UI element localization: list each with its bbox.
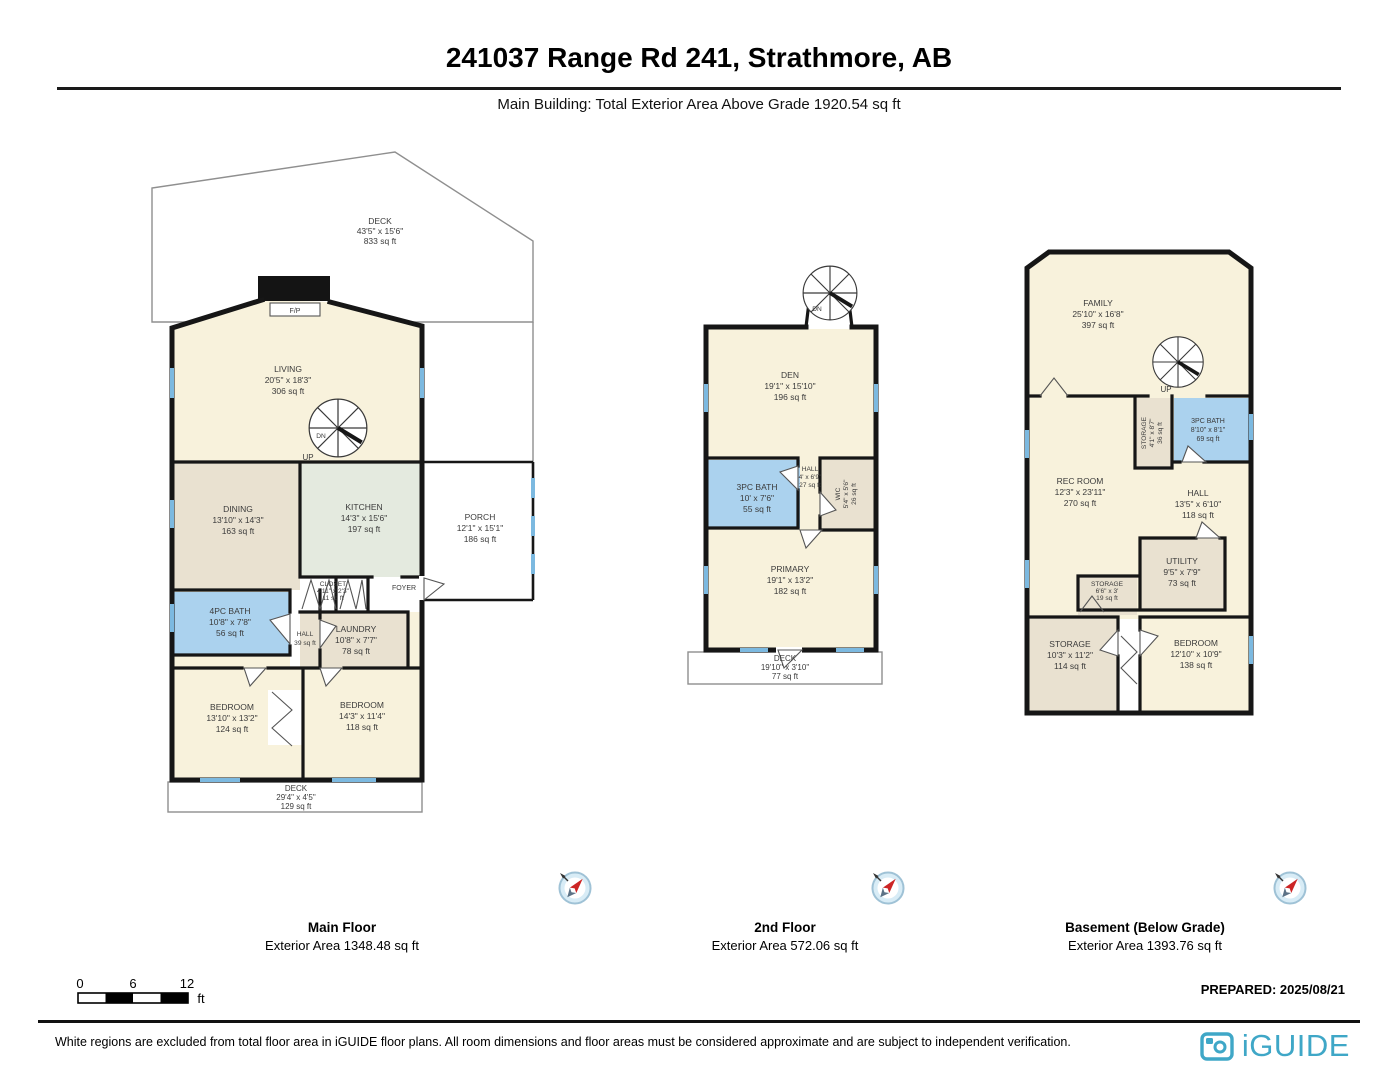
room-label-storage-lower: STORAGE <box>1049 639 1091 649</box>
svg-text:55 sq ft: 55 sq ft <box>743 504 772 514</box>
svg-text:8'10" x 8'1": 8'10" x 8'1" <box>1191 427 1226 434</box>
svg-text:39 sq ft: 39 sq ft <box>294 640 316 647</box>
room-label-rec-room: REC ROOM <box>1057 476 1104 486</box>
room-label-family: FAMILY <box>1083 298 1113 308</box>
footer-divider <box>38 1020 1360 1023</box>
svg-text:14'3" x 15'6": 14'3" x 15'6" <box>341 513 388 523</box>
compass-icon <box>1275 873 1306 904</box>
disclaimer-text: White regions are excluded from total fl… <box>55 1035 1071 1049</box>
svg-text:186 sq ft: 186 sq ft <box>464 534 497 544</box>
spiral-staircase-icon <box>803 266 857 320</box>
scale-bar: 0 6 12 ft <box>76 976 205 1006</box>
svg-text:13'10" x 13'2": 13'10" x 13'2" <box>206 713 257 723</box>
iguide-logo: iGUIDE <box>1199 1028 1350 1064</box>
stair-dn-label: DN <box>316 433 326 440</box>
room-label-closet: CLOSET <box>320 581 346 588</box>
svg-text:13'5" x 6'10": 13'5" x 6'10" <box>1175 499 1222 509</box>
svg-text:20'5" x 18'3": 20'5" x 18'3" <box>265 375 312 385</box>
svg-text:129 sq ft: 129 sq ft <box>281 802 312 811</box>
stair-up-label: UP <box>1160 385 1171 394</box>
svg-text:29'4" x 4'5": 29'4" x 4'5" <box>276 793 316 802</box>
fireplace-label: F/P <box>290 308 301 315</box>
svg-text:196 sq ft: 196 sq ft <box>774 392 807 402</box>
room-label-bedroom-left: BEDROOM <box>210 702 254 712</box>
room-label-primary: PRIMARY <box>771 564 810 574</box>
caption-second-floor: 2nd Floor Exterior Area 572.06 sq ft <box>625 920 945 953</box>
svg-text:STORAGE: STORAGE <box>1141 416 1148 449</box>
room-label-hall-basement: HALL <box>1187 488 1209 498</box>
basement-floor-plan: FAMILY 25'10" x 16'8" 397 sq ft STORAGE … <box>1027 252 1251 713</box>
svg-text:114 sq ft: 114 sq ft <box>1054 661 1087 671</box>
room-label-living: LIVING <box>274 364 302 374</box>
svg-text:10'8" x 7'7": 10'8" x 7'7" <box>335 635 377 645</box>
svg-text:4'1" x 8'7": 4'1" x 8'7" <box>1149 418 1156 447</box>
svg-text:4'11" x 2'3": 4'11" x 2'3" <box>317 588 350 595</box>
scale-unit: ft <box>197 991 205 1006</box>
svg-text:43'5" x 15'6": 43'5" x 15'6" <box>357 226 404 236</box>
main-deck-upper-outline <box>152 152 533 322</box>
stair-up-label: UP <box>302 453 313 462</box>
spiral-staircase-icon <box>309 399 367 457</box>
svg-text:182 sq ft: 182 sq ft <box>774 586 807 596</box>
svg-text:306 sq ft: 306 sq ft <box>272 386 305 396</box>
room-label-porch: PORCH <box>465 512 496 522</box>
room-label-laundry: LAUNDRY <box>336 624 377 634</box>
svg-text:77 sq ft: 77 sq ft <box>772 672 799 681</box>
svg-text:73 sq ft: 73 sq ft <box>1168 578 1197 588</box>
scale-tick-6: 6 <box>129 976 136 991</box>
room-label-foyer: FOYER <box>392 585 416 592</box>
scale-tick-0: 0 <box>76 976 83 991</box>
svg-text:19 sq ft: 19 sq ft <box>1096 595 1118 602</box>
svg-text:11 sq ft: 11 sq ft <box>322 595 343 602</box>
compass-icon <box>873 873 904 904</box>
room-label-3pc-bath-basement: 3PC BATH <box>1191 418 1225 425</box>
svg-text:WIC: WIC <box>835 487 842 500</box>
svg-text:118 sq ft: 118 sq ft <box>346 722 379 732</box>
room-label-storage-small: STORAGE <box>1091 581 1124 588</box>
svg-text:12'1" x 15'1": 12'1" x 15'1" <box>457 523 504 533</box>
svg-text:12'10" x 10'9": 12'10" x 10'9" <box>1170 649 1221 659</box>
iguide-camera-icon <box>1199 1030 1235 1062</box>
svg-text:69 sq ft: 69 sq ft <box>1197 436 1220 443</box>
svg-text:197 sq ft: 197 sq ft <box>348 524 381 534</box>
room-label-3pc-bath-2nd: 3PC BATH <box>737 482 778 492</box>
svg-text:6'6" x 3': 6'6" x 3' <box>1096 588 1119 595</box>
second-floor-plan: DEN 19'1" x 15'10" 196 sq ft 3PC BATH 10… <box>688 266 882 684</box>
room-label-4pc-bath: 4PC BATH <box>210 606 251 616</box>
main-floor-plan: DECK 43'5" x 15'6" 833 sq ft LIVING 20'5… <box>152 152 533 812</box>
svg-text:78 sq ft: 78 sq ft <box>342 646 371 656</box>
svg-text:26 sq ft: 26 sq ft <box>851 483 858 505</box>
svg-text:56 sq ft: 56 sq ft <box>216 628 245 638</box>
caption-main-floor: Main Floor Exterior Area 1348.48 sq ft <box>182 920 502 953</box>
room-label-deck-2nd: DECK <box>774 654 797 663</box>
svg-text:10'8" x 7'8": 10'8" x 7'8" <box>209 617 251 627</box>
floor-plans-canvas: DECK 43'5" x 15'6" 833 sq ft LIVING 20'5… <box>0 0 1398 1080</box>
room-label-hall-main: HALL <box>297 631 314 638</box>
caption-basement: Basement (Below Grade) Exterior Area 139… <box>985 920 1305 953</box>
room-label-kitchen: KITCHEN <box>345 502 382 512</box>
room-label-dining: DINING <box>223 504 253 514</box>
floorplan-page: 241037 Range Rd 241, Strathmore, AB Main… <box>0 0 1398 1080</box>
stair-dn-label: DN <box>812 306 822 313</box>
iguide-logo-text: iGUIDE <box>1242 1028 1350 1064</box>
svg-text:10'3" x 11'2": 10'3" x 11'2" <box>1047 650 1093 660</box>
svg-text:13'10" x 14'3": 13'10" x 14'3" <box>212 515 263 525</box>
scale-tick-12: 12 <box>180 976 194 991</box>
svg-text:10' x 7'6": 10' x 7'6" <box>740 493 774 503</box>
svg-text:36 sq ft: 36 sq ft <box>1157 422 1164 444</box>
room-label-bedroom-right: BEDROOM <box>340 700 384 710</box>
svg-text:270 sq ft: 270 sq ft <box>1064 498 1097 508</box>
room-label-utility: UTILITY <box>1166 556 1198 566</box>
svg-text:4' x 6'9": 4' x 6'9" <box>799 474 822 481</box>
room-label-den: DEN <box>781 370 799 380</box>
svg-text:9'5" x 7'9": 9'5" x 7'9" <box>1163 567 1200 577</box>
room-label-deck-lower: DECK <box>285 784 308 793</box>
svg-text:124 sq ft: 124 sq ft <box>216 724 249 734</box>
svg-text:19'1" x 15'10": 19'1" x 15'10" <box>764 381 815 391</box>
compass-icon <box>560 873 591 904</box>
svg-text:19'1" x 13'2": 19'1" x 13'2" <box>767 575 814 585</box>
spiral-staircase-icon <box>1153 337 1203 387</box>
svg-text:5'4" x 5'6": 5'4" x 5'6" <box>843 479 850 508</box>
svg-text:833 sq ft: 833 sq ft <box>364 236 397 246</box>
svg-text:118 sq ft: 118 sq ft <box>1182 510 1215 520</box>
svg-text:163 sq ft: 163 sq ft <box>222 526 255 536</box>
svg-text:27 sq ft: 27 sq ft <box>799 482 821 489</box>
svg-text:397 sq ft: 397 sq ft <box>1082 320 1115 330</box>
svg-text:19'10" x 3'10": 19'10" x 3'10" <box>761 663 809 672</box>
svg-text:14'3" x 11'4": 14'3" x 11'4" <box>339 711 385 721</box>
room-label-deck-upper: DECK <box>368 216 392 226</box>
fireplace-icon <box>258 276 330 301</box>
room-label-hall-2nd: HALL <box>802 466 819 473</box>
svg-text:25'10" x 16'8": 25'10" x 16'8" <box>1072 309 1123 319</box>
prepared-date: PREPARED: 2025/08/21 <box>1201 982 1345 997</box>
svg-text:138 sq ft: 138 sq ft <box>1180 660 1213 670</box>
room-label-bedroom-basement: BEDROOM <box>1174 638 1218 648</box>
svg-text:12'3" x 23'11": 12'3" x 23'11" <box>1055 487 1106 497</box>
